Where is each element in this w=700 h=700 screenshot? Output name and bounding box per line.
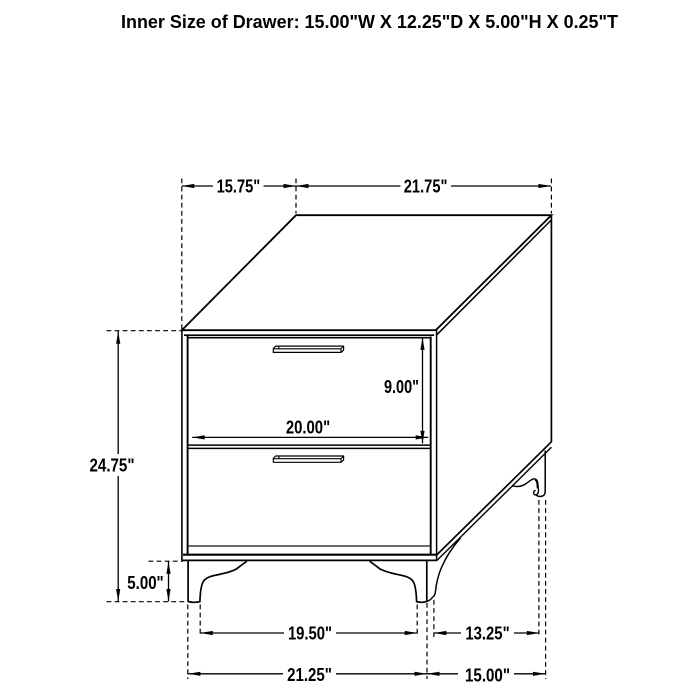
svg-text:19.50": 19.50": [288, 623, 332, 643]
svg-text:24.75": 24.75": [90, 456, 135, 476]
svg-text:13.25": 13.25": [465, 623, 509, 643]
svg-text:15.75": 15.75": [217, 176, 261, 196]
svg-text:9.00": 9.00": [384, 377, 419, 397]
svg-text:20.00": 20.00": [286, 418, 330, 438]
svg-text:21.25": 21.25": [287, 665, 332, 685]
svg-text:Inner Size of Drawer: 15.00"W: Inner Size of Drawer: 15.00"W X 12.25"D …: [121, 12, 618, 32]
svg-text:5.00": 5.00": [127, 573, 163, 593]
svg-text:21.75": 21.75": [404, 176, 448, 196]
svg-text:15.00": 15.00": [465, 665, 510, 685]
